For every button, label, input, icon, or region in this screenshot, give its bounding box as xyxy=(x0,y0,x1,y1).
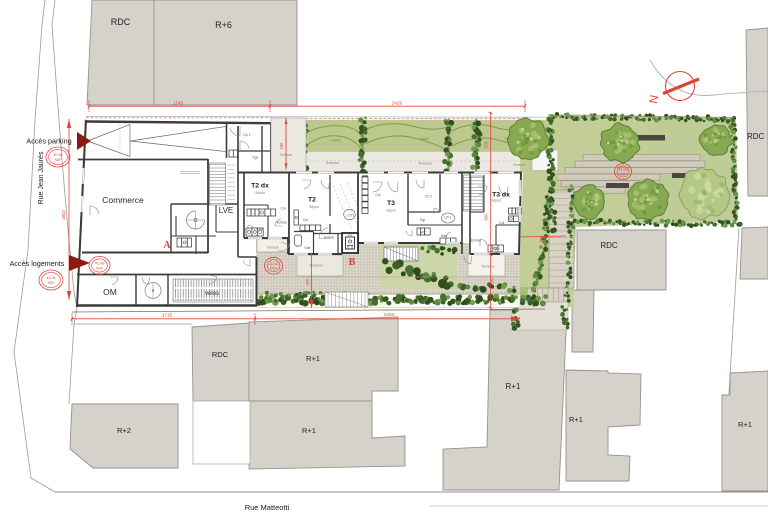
svg-text:Jardin: Jardin xyxy=(419,137,429,141)
svg-text:B: B xyxy=(349,257,356,268)
svg-text:T3 dx: T3 dx xyxy=(492,192,510,199)
svg-text:1715: 1715 xyxy=(162,313,173,318)
svg-text:Terrasse: Terrasse xyxy=(267,246,279,250)
svg-text:Commerce: Commerce xyxy=(102,195,144,205)
svg-text:T3: T3 xyxy=(387,200,395,207)
svg-text:300: 300 xyxy=(305,278,310,285)
svg-text:500: 500 xyxy=(279,142,284,150)
svg-text:A: A xyxy=(163,240,171,251)
svg-text:R+1: R+1 xyxy=(569,415,583,424)
svg-text:R+6: R+6 xyxy=(215,20,232,30)
svg-text:Séjour: Séjour xyxy=(255,191,266,195)
svg-text:Sde: Sde xyxy=(494,247,500,251)
svg-text:2493: 2493 xyxy=(384,312,395,317)
svg-text:41.90: 41.90 xyxy=(619,168,628,172)
svg-text:1803: 1803 xyxy=(61,210,66,220)
svg-text:Rue Matteotti: Rue Matteotti xyxy=(245,503,290,512)
svg-text:Cui: Cui xyxy=(499,221,504,225)
svg-text:Séjour: Séjour xyxy=(491,199,502,203)
svg-text:Sde: Sde xyxy=(304,246,310,250)
svg-text:OM: OM xyxy=(103,287,117,297)
svg-text:T2: T2 xyxy=(308,197,316,204)
svg-text:RDC: RDC xyxy=(747,132,765,141)
svg-text:Cui: Cui xyxy=(303,218,308,222)
svg-text:Entrée: Entrée xyxy=(471,239,481,243)
svg-text:Séjour: Séjour xyxy=(309,205,320,209)
svg-text:Terrasse: Terrasse xyxy=(309,264,323,268)
svg-text:41.04: 41.04 xyxy=(269,262,278,266)
svg-text:RDC: RDC xyxy=(600,241,618,250)
svg-text:RDC: RDC xyxy=(111,17,131,27)
svg-text:Cui: Cui xyxy=(280,207,285,211)
svg-text:R+2: R+2 xyxy=(117,426,131,435)
svg-text:RDC: RDC xyxy=(212,350,229,359)
svg-text:T2 dx: T2 dx xyxy=(251,183,269,190)
svg-text:Accès parking: Accès parking xyxy=(26,137,71,146)
svg-text:NGF: NGF xyxy=(620,172,627,176)
svg-text:500: 500 xyxy=(490,277,495,285)
svg-text:Dgt: Dgt xyxy=(252,156,257,160)
svg-text:WC: WC xyxy=(421,231,427,235)
svg-text:Ch 1: Ch 1 xyxy=(444,216,451,220)
svg-text:NGF: NGF xyxy=(270,267,277,271)
svg-text:LVE: LVE xyxy=(219,206,234,215)
svg-text:Asc: Asc xyxy=(348,233,353,237)
svg-text:NGF: NGF xyxy=(55,158,62,162)
svg-text:Séjour: Séjour xyxy=(386,209,397,213)
svg-text:Entrée: Entrée xyxy=(324,236,334,240)
svg-text:41.04: 41.04 xyxy=(47,276,56,280)
svg-text:Dgt: Dgt xyxy=(420,218,425,222)
svg-text:Sde: Sde xyxy=(441,234,447,238)
svg-text:R+1: R+1 xyxy=(738,420,752,429)
svg-text:1745: 1745 xyxy=(173,101,184,106)
svg-text:Entrée: Entrée xyxy=(277,221,287,225)
svg-text:Accès logements: Accès logements xyxy=(10,259,65,268)
svg-text:Jardin: Jardin xyxy=(331,139,341,143)
svg-text:Ch 2: Ch 2 xyxy=(425,195,432,199)
svg-text:R+1: R+1 xyxy=(306,354,320,363)
svg-text:41.06: 41.06 xyxy=(95,262,104,266)
svg-text:Ch 1: Ch 1 xyxy=(347,214,354,218)
svg-text:R+1: R+1 xyxy=(506,382,521,391)
svg-text:Rue Jean Jaurès: Rue Jean Jaurès xyxy=(38,151,45,204)
svg-text:Terrasse: Terrasse xyxy=(418,162,432,166)
svg-text:vélos: vélos xyxy=(205,291,219,297)
svg-text:R+1: R+1 xyxy=(302,426,316,435)
svg-text:Cui: Cui xyxy=(375,193,380,197)
svg-text:Sde: Sde xyxy=(257,228,263,232)
svg-text:NGF: NGF xyxy=(48,281,55,285)
svg-text:526: 526 xyxy=(484,141,489,149)
svg-text:40.96: 40.96 xyxy=(54,153,63,157)
svg-text:800: 800 xyxy=(484,213,489,221)
svg-text:Terrasse: Terrasse xyxy=(325,161,339,165)
svg-text:2426: 2426 xyxy=(392,101,403,106)
svg-text:Terrasse: Terrasse xyxy=(513,163,525,167)
svg-text:Ch 1: Ch 1 xyxy=(243,133,251,137)
svg-text:NGF: NGF xyxy=(96,266,103,270)
svg-text:Terrasse: Terrasse xyxy=(481,265,495,269)
